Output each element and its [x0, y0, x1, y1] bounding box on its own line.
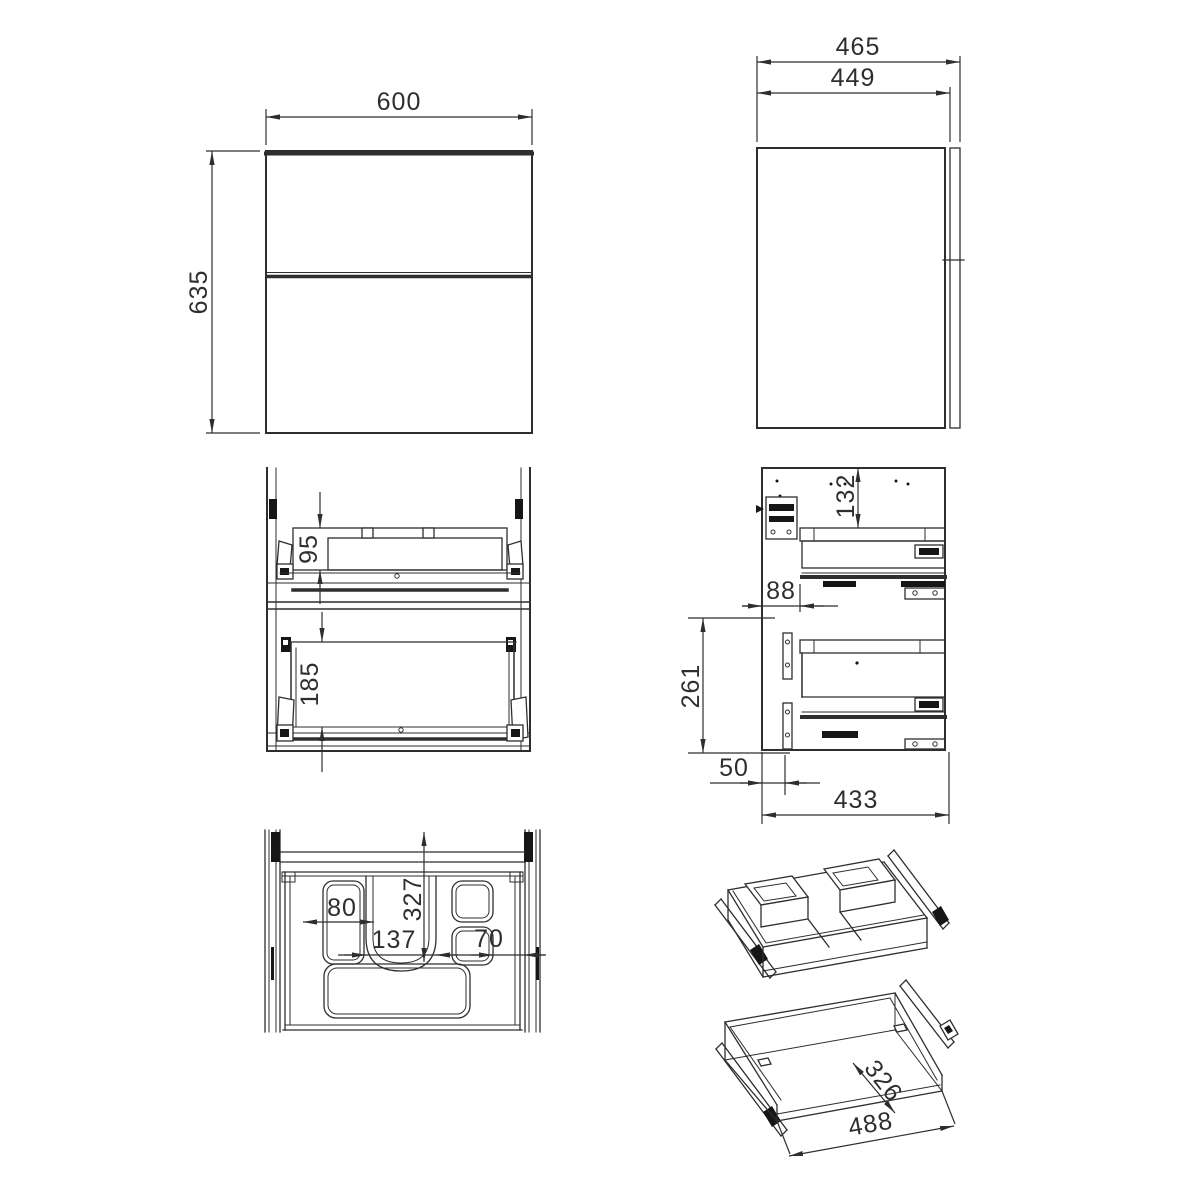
dim-front-height: 635 — [185, 270, 213, 315]
dim-bottom-offset: 50 — [719, 754, 749, 782]
dim-front-width: 600 — [377, 88, 422, 116]
slide-mount-right — [515, 499, 523, 519]
dim-right-tray: 70 — [474, 925, 504, 953]
dim-drawer-width: 488 — [846, 1106, 895, 1141]
slide-mount-left — [269, 499, 277, 519]
plan-view: 327 80 137 70 — [265, 830, 546, 1032]
iso-organizer-drawer — [715, 850, 949, 978]
side-view: 465 449 — [757, 33, 964, 428]
dim-top-clearance: 132 — [832, 474, 860, 519]
dim-left-tray: 80 — [327, 894, 357, 922]
dim-tray-depth: 327 — [399, 877, 427, 922]
dim-depth-carcass: 449 — [831, 64, 876, 92]
dim-bottom-drawer-height: 185 — [296, 662, 324, 707]
side-section-view: 132 88 261 — [677, 468, 949, 824]
rail-bracket — [932, 906, 949, 926]
front-view: 600 635 — [185, 88, 532, 433]
dim-cutout-width: 137 — [372, 926, 417, 954]
dim-rail-pitch: 261 — [677, 664, 705, 709]
dim-top-drawer-height: 95 — [295, 534, 323, 564]
dim-front-offset: 88 — [766, 577, 796, 605]
dim-depth-total: 465 — [836, 33, 881, 61]
dim-internal-depth: 433 — [834, 786, 879, 814]
iso-drawer-box: 326 488 — [716, 980, 958, 1156]
dim-drawer-depth: 326 — [859, 1055, 909, 1107]
drawing-canvas: 600 635 465 449 — [0, 0, 1200, 1200]
front-section-view: 95 185 — [267, 468, 530, 772]
